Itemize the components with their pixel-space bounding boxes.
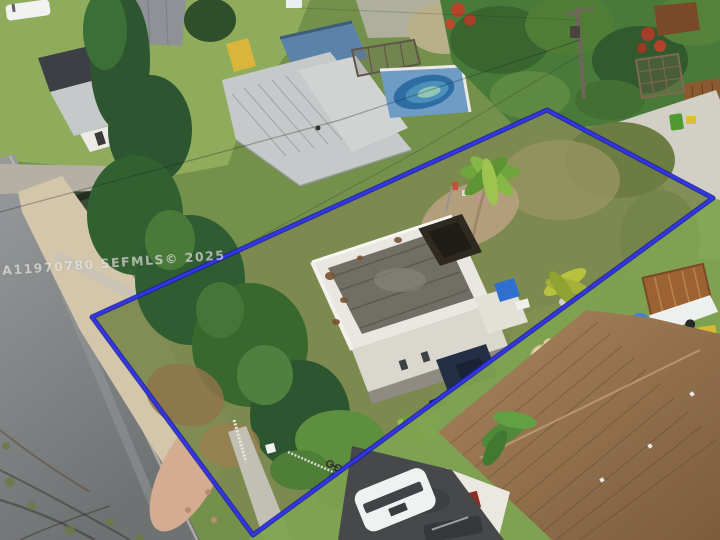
green-trash-bin [669,113,684,131]
brown-shed-north [654,2,700,36]
roof-wear-patch [374,268,426,292]
scene-svg [0,0,720,540]
hedge [184,0,236,42]
white-truck-roof [286,0,302,8]
aerial-photo: A11970780 SEFMLS© 2025 [0,0,720,540]
yellow-object [686,116,696,124]
white-car-windshield [13,4,14,12]
transformer [570,26,580,38]
pergola-lattice [636,54,684,98]
